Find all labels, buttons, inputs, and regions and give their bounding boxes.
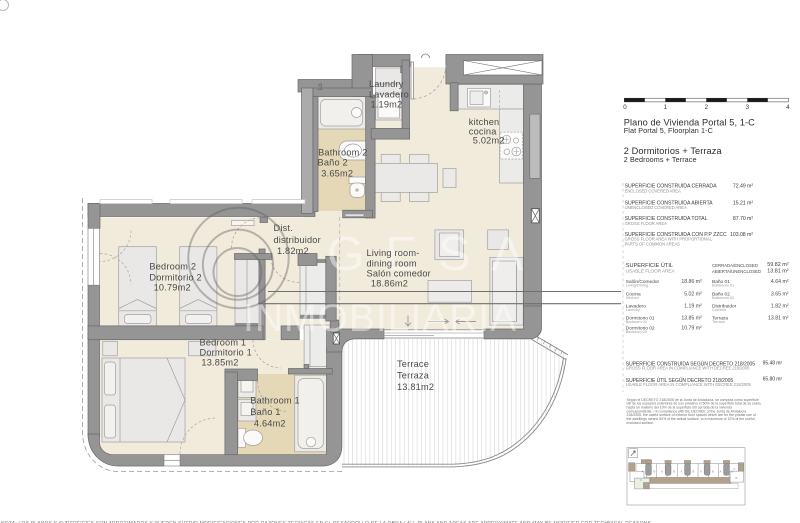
svg-text:13.81 m²: 13.81 m² (768, 315, 789, 321)
svg-text:Terraza: Terraza (397, 371, 430, 381)
svg-text:59.82 m²: 59.82 m² (767, 262, 788, 268)
svg-text:Baño 1: Baño 1 (250, 407, 280, 417)
svg-text:3.65m2: 3.65m2 (321, 168, 353, 178)
svg-text:3.65 m²: 3.65 m² (771, 291, 789, 297)
svg-text:B: B (654, 470, 656, 474)
svg-text:Laundry: Laundry (369, 79, 404, 89)
svg-text:0: 0 (623, 104, 627, 111)
svg-text:C: C (640, 478, 642, 482)
svg-text:103.08 m²: 103.08 m² (730, 232, 753, 238)
svg-text:Bathroom 2: Bathroom 2 (318, 148, 368, 158)
svg-text:kitchen: kitchen (469, 117, 500, 127)
svg-text:Bathroom 02: Bathroom 02 (712, 295, 734, 300)
svg-text:Laundry: Laundry (626, 307, 640, 312)
svg-text:10.79m2: 10.79m2 (154, 283, 191, 293)
svg-text:Baño 2: Baño 2 (318, 158, 348, 168)
svg-text:B: B (736, 476, 738, 480)
svg-text:Bedroom 2: Bedroom 2 (149, 262, 196, 272)
svg-text:72.49 m²: 72.49 m² (733, 184, 753, 190)
svg-text:Dormitorio 1: Dormitorio 1 (200, 348, 252, 358)
svg-text:18.86 m²: 18.86 m² (681, 279, 702, 285)
svg-text:13.85m2: 13.85m2 (201, 358, 238, 368)
svg-text:95.48 m²: 95.48 m² (763, 361, 783, 367)
svg-text:Salón comedor: Salón comedor (367, 269, 431, 279)
svg-text:1.19m2: 1.19m2 (371, 100, 403, 110)
svg-text:Bedroom 01: Bedroom 01 (626, 319, 647, 324)
svg-text:5.02m2: 5.02m2 (473, 136, 505, 146)
svg-text:Bedroom 02: Bedroom 02 (626, 329, 647, 334)
svg-text:Corridor: Corridor (712, 307, 727, 312)
svg-text:18.86m2: 18.86m2 (371, 279, 408, 289)
svg-text:3: 3 (746, 104, 750, 111)
svg-text:USABLE FLOOR AREA: USABLE FLOOR AREA (626, 269, 676, 274)
svg-text:Terrace: Terrace (397, 359, 429, 369)
svg-text:B: B (693, 470, 695, 474)
svg-text:15.21 m²: 15.21 m² (733, 200, 753, 206)
svg-text:GROSS FLOOR AREA: GROSS FLOOR AREA (625, 221, 668, 226)
svg-text:Kitchen: Kitchen (626, 295, 639, 300)
svg-text:C: C (734, 467, 736, 471)
svg-text:USABLE FLOOR AREA IN COMPLIANC: USABLE FLOOR AREA IN COMPLIANCE WITH DEC… (626, 382, 752, 387)
svg-text:Flat Portal 5, Floorplan 1-C: Flat Portal 5, Floorplan 1-C (624, 126, 713, 135)
svg-text:4.64 m²: 4.64 m² (771, 279, 789, 285)
svg-text:Dormitorio 2: Dormitorio 2 (149, 272, 201, 282)
svg-text:87.70 m²: 87.70 m² (733, 216, 753, 222)
svg-text:2 Bedrooms + Terrace: 2 Bedrooms + Terrace (624, 155, 697, 164)
svg-text:Dist.: Dist. (274, 223, 293, 233)
svg-text:A: A (720, 470, 722, 474)
svg-text:distribuidor: distribuidor (274, 235, 321, 245)
svg-text:13.81 m²: 13.81 m² (767, 269, 788, 275)
svg-text:B: B (673, 470, 675, 474)
svg-text:PARTS OF COMMON AREAS: PARTS OF COMMON AREAS (625, 242, 681, 247)
svg-text:GROSS FLOOR AREA IN COMPLIANCE: GROSS FLOOR AREA IN COMPLIANCE WITH DECR… (626, 366, 750, 371)
svg-text:A: A (700, 470, 702, 474)
svg-text:Living room-: Living room- (367, 248, 420, 258)
svg-text:1.19 m²: 1.19 m² (684, 303, 702, 309)
svg-text:B: B (712, 470, 714, 474)
svg-text:A: A (661, 470, 663, 474)
svg-text:4.64m2: 4.64m2 (254, 419, 286, 429)
svg-text:GESA: GESA (327, 228, 544, 281)
svg-text:enclosed surface.: enclosed surface. (627, 421, 654, 425)
svg-text:2: 2 (705, 104, 709, 111)
svg-text:1.82 m²: 1.82 m² (771, 303, 789, 309)
svg-text:13.81m2: 13.81m2 (397, 382, 434, 392)
svg-text:UNENCLOSED COVERED AREA: UNENCLOSED COVERED AREA (625, 205, 687, 210)
svg-text:65.80 m²: 65.80 m² (763, 377, 783, 383)
svg-text:Living/Dining: Living/Dining (626, 283, 648, 288)
svg-text:ABIERTA/UNENCLOSED: ABIERTA/UNENCLOSED (712, 269, 761, 274)
svg-text:Terrace: Terrace (712, 319, 725, 324)
svg-text:1: 1 (664, 104, 668, 111)
svg-text:Bathroom 1: Bathroom 1 (250, 396, 299, 406)
svg-text:Bathroom 01: Bathroom 01 (712, 283, 734, 288)
svg-text:5.02 m²: 5.02 m² (684, 291, 702, 297)
svg-text:4: 4 (786, 104, 790, 111)
svg-text:Lavadero: Lavadero (369, 90, 409, 100)
svg-text:CERRADA/ENCLOSED: CERRADA/ENCLOSED (712, 263, 758, 268)
svg-text:10.79 m²: 10.79 m² (681, 326, 702, 332)
svg-text:Lo: Lo (318, 83, 324, 90)
svg-text:Bedroom 1: Bedroom 1 (200, 338, 247, 348)
svg-text:1.82m2: 1.82m2 (277, 246, 309, 256)
svg-text:A: A (642, 470, 644, 474)
svg-text:dining room: dining room (367, 259, 417, 269)
svg-text:13.85 m²: 13.85 m² (681, 315, 702, 321)
svg-text:ENCLOSED COVERED AREA: ENCLOSED COVERED AREA (625, 188, 681, 193)
svg-text:A: A (681, 470, 683, 474)
